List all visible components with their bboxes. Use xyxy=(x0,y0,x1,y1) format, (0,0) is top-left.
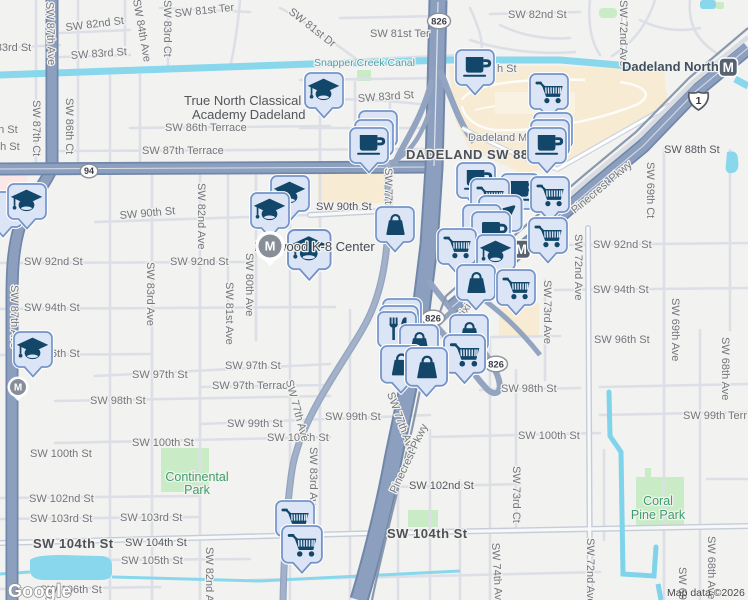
svg-text:SW 69th Ave: SW 69th Ave xyxy=(669,298,681,361)
svg-text:Dadeland North: Dadeland North xyxy=(622,59,719,74)
svg-text:SW 92nd St: SW 92nd St xyxy=(24,256,83,268)
svg-text:SW 88th St: SW 88th St xyxy=(664,144,720,156)
svg-text:True North Classical: True North Classical xyxy=(184,93,301,108)
svg-text:M: M xyxy=(265,239,276,254)
svg-text:SW 87th Ave: SW 87th Ave xyxy=(43,2,57,66)
svg-text:SW 73rd Ave: SW 73rd Ave xyxy=(541,280,553,344)
svg-text:Pine Park: Pine Park xyxy=(631,508,686,522)
svg-text:SW 92nd St: SW 92nd St xyxy=(170,256,229,268)
svg-text:Park: Park xyxy=(184,483,210,497)
svg-text:SW 99th Terr: SW 99th Terr xyxy=(683,410,747,422)
svg-text:h St: h St xyxy=(497,63,517,75)
svg-text:SW 68th Ave: SW 68th Ave xyxy=(719,337,731,400)
svg-text:SW 87th St: SW 87th St xyxy=(0,141,20,153)
svg-text:SW 72nd Ave: SW 72nd Ave xyxy=(572,234,584,300)
svg-text:SW 103rd St: SW 103rd St xyxy=(30,513,92,525)
svg-text:Google: Google xyxy=(8,581,72,600)
svg-text:SW 72nd Ave: SW 72nd Ave xyxy=(584,538,596,600)
svg-text:SW 97th St: SW 97th St xyxy=(132,369,188,381)
svg-text:M: M xyxy=(14,383,22,394)
svg-text:SW 81st Ter: SW 81st Ter xyxy=(370,28,430,40)
svg-text:SW 82nd Ave: SW 82nd Ave xyxy=(203,547,215,600)
svg-text:SW 86th Ct: SW 86th Ct xyxy=(63,98,75,154)
svg-text:SW 87th Ct: SW 87th Ct xyxy=(30,100,42,156)
svg-text:SW 102nd St: SW 102nd St xyxy=(409,480,474,492)
svg-text:SW 82nd Ave: SW 82nd Ave xyxy=(195,183,207,249)
svg-text:SW 87th Terrace: SW 87th Terrace xyxy=(142,145,224,157)
svg-text:Map data ©2026: Map data ©2026 xyxy=(667,587,745,599)
svg-text:SW 97th Terrace: SW 97th Terrace xyxy=(212,380,294,392)
svg-text:SW 72nd Ave: SW 72nd Ave xyxy=(617,0,629,66)
svg-text:SW 94th St: SW 94th St xyxy=(24,302,80,314)
svg-text:SW 100th St: SW 100th St xyxy=(30,448,92,460)
svg-text:SW 98th St: SW 98th St xyxy=(501,383,557,395)
svg-text:SW 103rd St: SW 103rd St xyxy=(120,512,182,524)
svg-text:SW 82nd St: SW 82nd St xyxy=(508,9,567,21)
svg-text:SW 90th St: SW 90th St xyxy=(316,201,372,213)
svg-text:Academy Dadeland: Academy Dadeland xyxy=(192,107,305,122)
svg-text:SW 92nd St: SW 92nd St xyxy=(593,239,652,251)
svg-text:SW 83rd St: SW 83rd St xyxy=(0,42,31,54)
svg-text:SW 83rd Ct: SW 83rd Ct xyxy=(161,0,173,57)
svg-text:SW 81st Ave: SW 81st Ave xyxy=(223,282,235,345)
svg-text:SW 104th St: SW 104th St xyxy=(125,537,187,549)
svg-text:SW 99th St: SW 99th St xyxy=(227,418,283,430)
svg-text:SW 83rd Ave: SW 83rd Ave xyxy=(144,262,156,326)
svg-text:SW 69th Ct: SW 69th Ct xyxy=(644,162,656,218)
svg-text:SW 80th Ave: SW 80th Ave xyxy=(243,253,255,316)
svg-text:SW 100th St: SW 100th St xyxy=(132,437,194,449)
svg-text:SW 86th Terrace: SW 86th Terrace xyxy=(165,122,247,134)
svg-text:SW 94th St: SW 94th St xyxy=(593,284,649,296)
svg-text:SW 97th St: SW 97th St xyxy=(225,360,281,372)
svg-text:SW 102nd St: SW 102nd St xyxy=(29,493,94,505)
svg-text:SW 99th St: SW 99th St xyxy=(325,411,381,423)
svg-text:SW 105th St: SW 105th St xyxy=(121,555,183,567)
svg-text:SW 73rd Ct: SW 73rd Ct xyxy=(510,466,522,523)
svg-text:Coral: Coral xyxy=(643,494,673,508)
svg-text:SW 96th St: SW 96th St xyxy=(594,334,650,346)
svg-text:Continental: Continental xyxy=(165,470,228,484)
svg-text:SW 98th St: SW 98th St xyxy=(90,395,146,407)
svg-text:Snapper Creek Canal: Snapper Creek Canal xyxy=(314,57,415,69)
svg-text:SW 104th St: SW 104th St xyxy=(387,526,468,541)
svg-text:SW 100th St: SW 100th St xyxy=(518,430,580,442)
svg-text:SW 104th St: SW 104th St xyxy=(33,536,114,551)
svg-text:SW 86th St: SW 86th St xyxy=(0,124,18,136)
